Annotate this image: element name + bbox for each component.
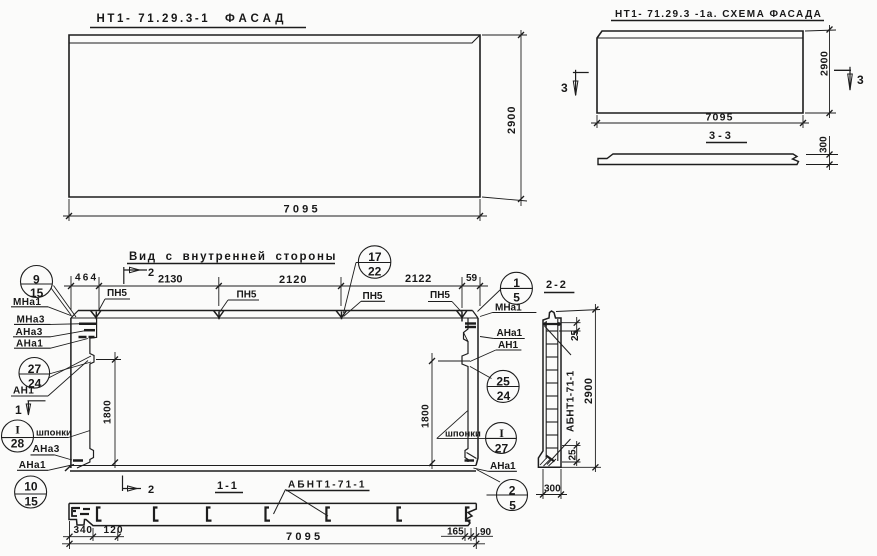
svg-text:25: 25	[496, 375, 510, 389]
svg-text:10: 10	[24, 480, 38, 494]
svg-text:7095: 7095	[706, 112, 734, 124]
svg-text:22: 22	[368, 265, 382, 279]
svg-text:7095: 7095	[284, 204, 321, 216]
svg-text:АН1: АН1	[498, 340, 518, 351]
svg-text:МНа1: МНа1	[495, 303, 522, 314]
svg-text:2900: 2900	[583, 378, 595, 404]
svg-text:2: 2	[148, 267, 154, 279]
svg-text:59: 59	[466, 273, 478, 284]
svg-text:464: 464	[75, 273, 98, 284]
svg-text:АНа1: АНа1	[490, 461, 516, 472]
svg-text:ПН5: ПН5	[107, 288, 127, 299]
svg-text:I: I	[15, 423, 20, 437]
svg-text:1800: 1800	[421, 404, 432, 428]
svg-text:15: 15	[25, 495, 39, 509]
svg-text:ФАСАД: ФАСАД	[225, 13, 288, 25]
svg-text:300: 300	[819, 136, 830, 153]
svg-text:2900: 2900	[506, 106, 518, 134]
svg-text:АНа1: АНа1	[16, 338, 43, 349]
svg-text:3: 3	[857, 73, 864, 87]
svg-text:АНа1: АНа1	[19, 460, 46, 471]
svg-text:2122: 2122	[405, 273, 432, 285]
svg-text:1800: 1800	[103, 400, 114, 424]
svg-text:17: 17	[368, 250, 382, 264]
svg-text:2-2: 2-2	[546, 279, 568, 291]
svg-text:3-3: 3-3	[709, 130, 734, 142]
svg-text:2130: 2130	[158, 274, 182, 286]
svg-text:НТ1- 71.29.3-1: НТ1- 71.29.3-1	[97, 13, 211, 25]
svg-text:АБНТ1-71-1: АБНТ1-71-1	[288, 480, 367, 491]
svg-text:ПН5: ПН5	[430, 290, 450, 301]
svg-text:5: 5	[509, 499, 516, 513]
svg-text:9: 9	[33, 273, 40, 287]
svg-text:2120: 2120	[279, 274, 307, 286]
svg-text:27: 27	[28, 362, 42, 376]
svg-text:1: 1	[513, 276, 520, 290]
svg-text:АН1: АН1	[13, 386, 34, 397]
svg-text:25: 25	[570, 329, 581, 341]
svg-text:шпонки: шпонки	[445, 429, 481, 440]
svg-text:АБНТ1-71-1: АБНТ1-71-1	[566, 370, 577, 432]
svg-text:шпонки: шпонки	[36, 428, 72, 439]
svg-text:НТ1- 71.29.3 -1а. СХЕМА ФАСАДА: НТ1- 71.29.3 -1а. СХЕМА ФАСАДА	[615, 9, 822, 20]
svg-text:300: 300	[544, 484, 561, 495]
svg-text:Вид с внутренней стороны: Вид с внутренней стороны	[129, 251, 337, 263]
svg-text:ПН5: ПН5	[237, 290, 257, 301]
svg-text:2900: 2900	[819, 51, 831, 76]
svg-text:АНа3: АНа3	[33, 444, 60, 455]
svg-text:24: 24	[497, 389, 511, 403]
svg-text:ПН5: ПН5	[363, 291, 383, 302]
svg-text:1: 1	[15, 403, 22, 417]
svg-text:3: 3	[561, 81, 568, 95]
svg-text:7095: 7095	[286, 531, 323, 543]
svg-text:25: 25	[568, 449, 579, 461]
svg-text:340: 340	[74, 525, 93, 536]
svg-text:28: 28	[11, 437, 25, 451]
svg-text:АНа1: АНа1	[497, 328, 523, 339]
svg-text:27: 27	[495, 442, 509, 456]
svg-text:2: 2	[148, 484, 154, 496]
svg-text:I: I	[499, 426, 504, 440]
svg-text:2: 2	[509, 484, 516, 498]
svg-text:1-1: 1-1	[217, 480, 239, 492]
